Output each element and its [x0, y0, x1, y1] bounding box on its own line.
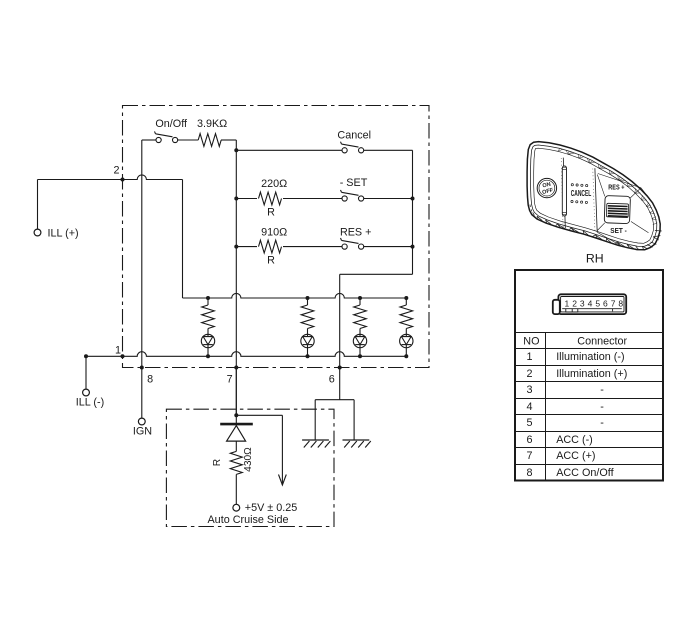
svg-text:6: 6 [526, 434, 532, 446]
svg-text:8: 8 [618, 298, 623, 308]
svg-text:6: 6 [329, 374, 335, 386]
svg-text:SET -: SET - [610, 226, 627, 235]
svg-text:220Ω: 220Ω [261, 178, 287, 190]
svg-text:1: 1 [565, 298, 570, 308]
svg-text:RES +: RES + [340, 227, 372, 239]
svg-text:ILL (+): ILL (+) [48, 227, 79, 239]
svg-text:R: R [212, 459, 223, 466]
svg-text:-: - [600, 384, 604, 396]
svg-text:Cancel: Cancel [337, 129, 371, 141]
svg-text:R: R [267, 207, 275, 219]
svg-text:-: - [600, 401, 604, 413]
svg-text:2: 2 [113, 165, 119, 177]
svg-text:1: 1 [115, 344, 121, 356]
svg-text:7: 7 [611, 298, 616, 308]
svg-text:ILL (-): ILL (-) [76, 396, 104, 408]
svg-text:Connector: Connector [577, 335, 627, 347]
svg-text:Auto Cruise Side: Auto Cruise Side [207, 514, 288, 526]
svg-text:7: 7 [227, 374, 233, 386]
svg-text:2: 2 [572, 298, 577, 308]
svg-text:+5V ± 0.25: +5V ± 0.25 [245, 502, 297, 514]
svg-text:ACC (+): ACC (+) [556, 450, 595, 462]
svg-text:CANCEL: CANCEL [571, 189, 592, 198]
svg-text:4: 4 [526, 401, 532, 413]
svg-text:8: 8 [147, 374, 153, 386]
svg-text:RES +: RES + [608, 183, 625, 192]
svg-text:3.9KΩ: 3.9KΩ [197, 118, 227, 130]
svg-text:On/Off: On/Off [155, 118, 188, 130]
svg-text:Illumination (+): Illumination (+) [556, 368, 627, 380]
svg-text:ACC (-): ACC (-) [556, 434, 593, 446]
svg-text:7: 7 [526, 450, 532, 462]
svg-text:R: R [267, 255, 275, 267]
svg-text:- SET: - SET [340, 177, 368, 189]
svg-text:3: 3 [580, 298, 585, 308]
svg-text:910Ω: 910Ω [261, 227, 287, 239]
svg-text:5: 5 [595, 298, 600, 308]
svg-text:Illumination (-): Illumination (-) [556, 351, 624, 363]
svg-text:8: 8 [526, 467, 532, 479]
svg-text:NO: NO [523, 335, 539, 347]
svg-text:-: - [600, 417, 604, 429]
svg-text:RH: RH [586, 252, 604, 266]
svg-text:2: 2 [526, 368, 532, 380]
svg-text:430Ω: 430Ω [243, 447, 254, 472]
svg-text:1: 1 [526, 351, 532, 363]
svg-text:ACC On/Off: ACC On/Off [556, 467, 614, 479]
svg-text:4: 4 [588, 298, 593, 308]
svg-text:6: 6 [603, 298, 608, 308]
svg-text:IGN: IGN [133, 425, 152, 437]
svg-text:5: 5 [526, 417, 532, 429]
svg-text:3: 3 [526, 384, 532, 396]
